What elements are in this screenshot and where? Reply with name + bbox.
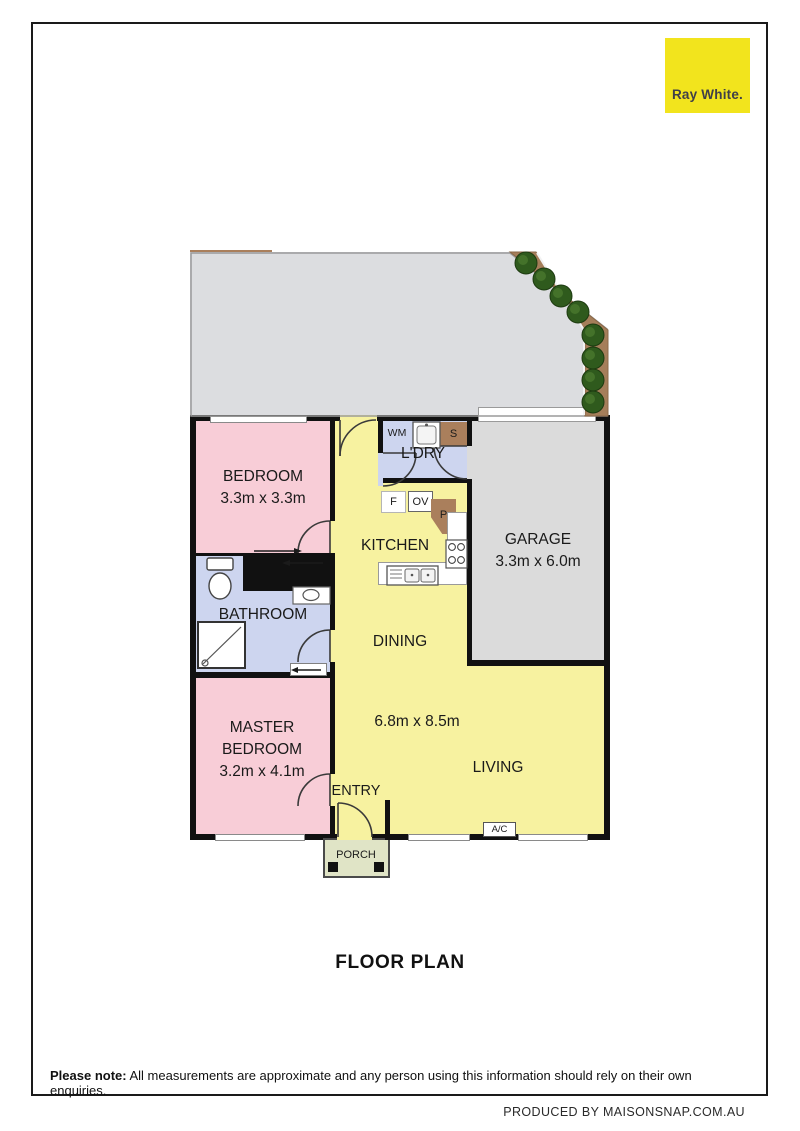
- robe-slide-arrow-right-icon: [254, 548, 302, 554]
- master-bedroom-label: MASTER BEDROOM 3.2m x 4.1m: [219, 717, 304, 783]
- entry-door-arc-icon: [338, 803, 372, 837]
- robe-slide-arrow-left-icon: [282, 560, 323, 566]
- bathroom-door-arc-icon: [298, 630, 330, 662]
- laundry-name: L'DRY: [401, 443, 445, 465]
- washing-machine-label: WM: [388, 426, 407, 441]
- ray-white-logo: Ray White.: [665, 38, 750, 113]
- bathroom-label: BATHROOM: [219, 604, 307, 626]
- master-slide-arrow-icon: [291, 667, 321, 673]
- kitchen-name: KITCHEN: [361, 535, 429, 557]
- garage-dims: 3.3m x 6.0m: [495, 551, 580, 573]
- tree-icons: [515, 252, 604, 413]
- garage-label: GARAGE 3.3m x 6.0m: [495, 529, 580, 573]
- page-title: FLOOR PLAN: [0, 952, 800, 974]
- shower-icon: [198, 622, 245, 668]
- dining-label: DINING: [373, 631, 427, 653]
- disclaimer-text: Please note: All measurements are approx…: [50, 1068, 730, 1098]
- kitchen-sink-icon: [387, 566, 438, 585]
- hall-top-door-arc-icon: [340, 420, 376, 456]
- bedroom-name: BEDROOM: [220, 466, 305, 488]
- garage-name: GARAGE: [495, 529, 580, 551]
- floor-plan-page: Ray White. BIR S F: [0, 0, 800, 1131]
- producer-credit: PRODUCED BY MAISONSNAP.COM.AU: [0, 1105, 745, 1119]
- disclaimer-bold: Please note:: [50, 1068, 127, 1083]
- master-name-1: MASTER: [219, 717, 304, 739]
- porch-label: PORCH: [336, 848, 376, 864]
- vanity-basin-icon: [293, 587, 330, 604]
- bathroom-name: BATHROOM: [219, 604, 307, 626]
- bedroom-door-arc-icon: [298, 521, 330, 553]
- master-dims: 3.2m x 4.1m: [219, 761, 304, 783]
- floor-plan-drawing: BIR S F OV P A/C: [190, 250, 610, 878]
- laundry-label: L'DRY: [401, 443, 445, 465]
- toilet-icon: [207, 558, 233, 599]
- bedroom-dims: 3.3m x 3.3m: [220, 488, 305, 510]
- disclaimer-body: All measurements are approximate and any…: [50, 1068, 692, 1098]
- kitchen-label: KITCHEN: [361, 535, 429, 557]
- bedroom-label: BEDROOM 3.3m x 3.3m: [220, 466, 305, 510]
- entry-label: ENTRY: [332, 781, 381, 802]
- living-label: LIVING: [473, 757, 524, 779]
- ray-white-logo-text: Ray White.: [672, 87, 743, 102]
- master-name-2: BEDROOM: [219, 739, 304, 761]
- dining-name: DINING: [373, 631, 427, 653]
- cooktop-icon: [446, 540, 467, 568]
- living-dims-label: 6.8m x 8.5m: [374, 711, 459, 733]
